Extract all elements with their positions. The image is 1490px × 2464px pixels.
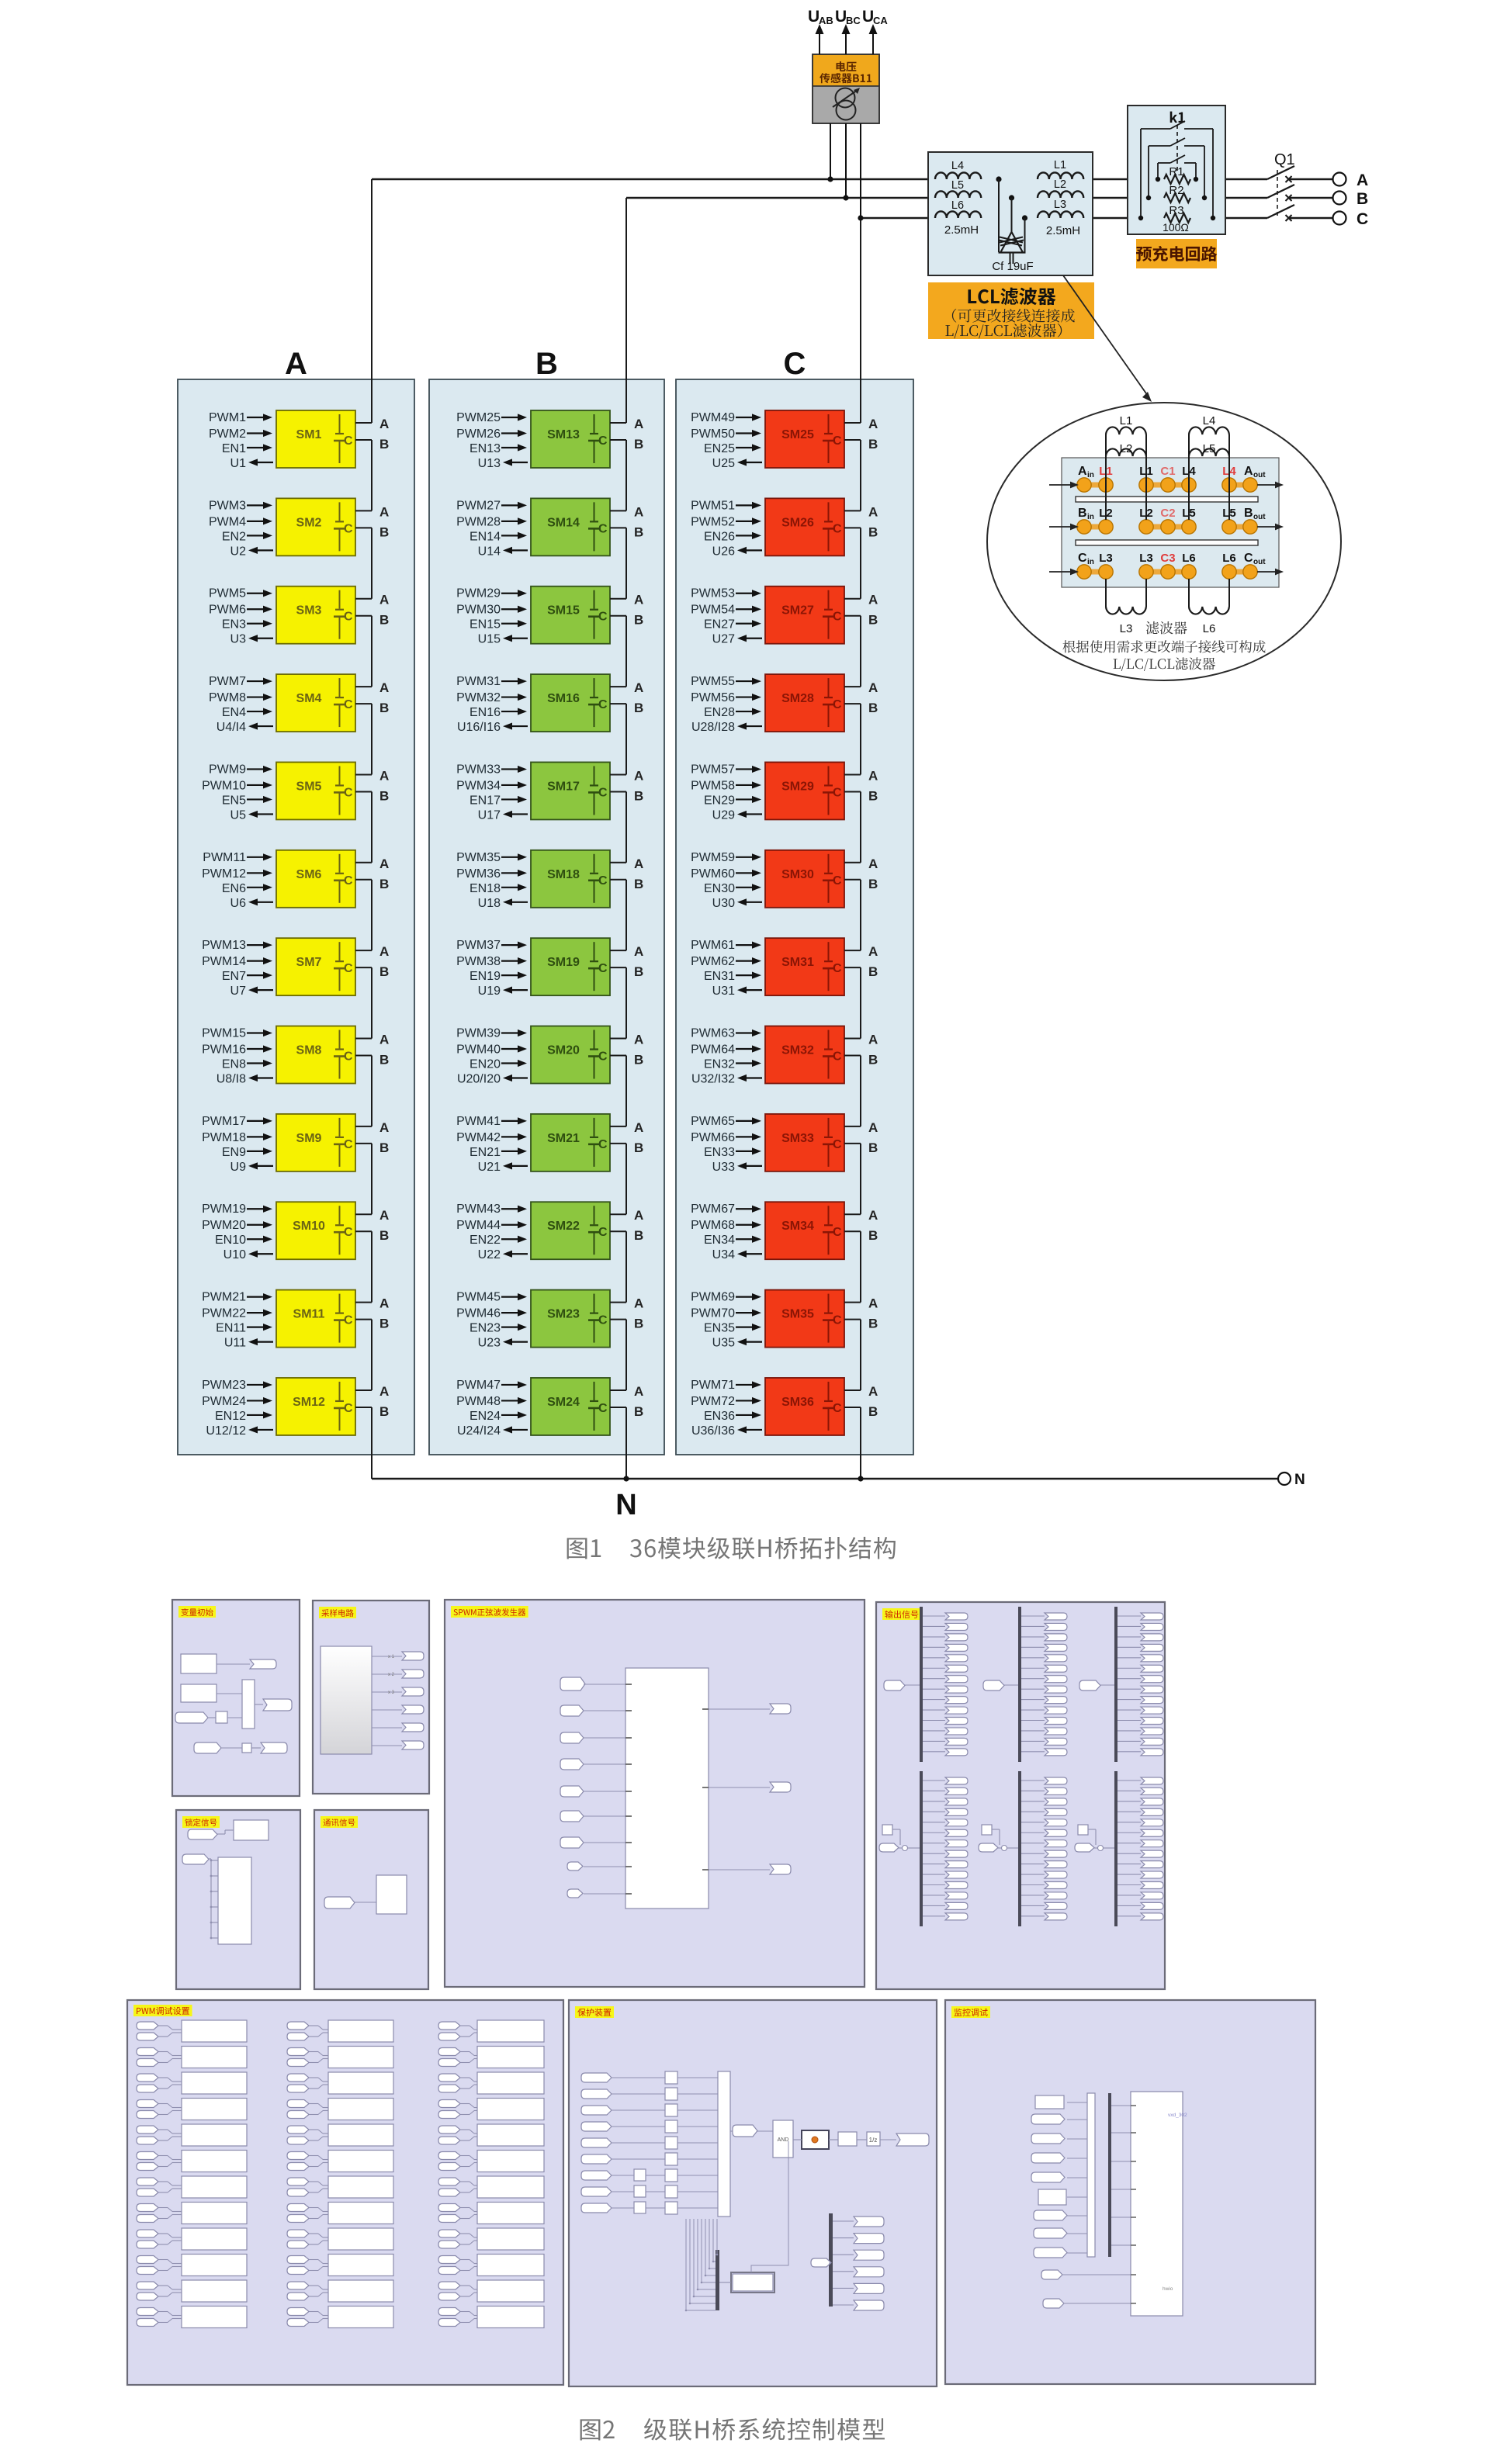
svg-text:PWM26: PWM26 (456, 427, 501, 441)
svg-text:SM27: SM27 (781, 604, 814, 618)
svg-text:A: A (379, 857, 389, 871)
svg-text:EN16: EN16 (470, 706, 501, 719)
svg-text:PWM46: PWM46 (456, 1307, 501, 1320)
svg-text:PWM71: PWM71 (691, 1379, 735, 1392)
svg-text:L3: L3 (1099, 552, 1113, 565)
svg-text:B: B (868, 701, 878, 715)
svg-text:U: U (808, 8, 819, 26)
svg-text:PWM14: PWM14 (202, 955, 246, 968)
svg-text:A: A (634, 680, 643, 695)
svg-text:C: C (344, 698, 353, 711)
svg-text:PWM1: PWM1 (209, 411, 246, 424)
svg-text:SM31: SM31 (781, 956, 814, 969)
svg-text:U7: U7 (230, 985, 247, 998)
svg-text:A: A (868, 1120, 878, 1135)
svg-text:B: B (868, 877, 878, 891)
svg-text:C: C (833, 962, 842, 975)
svg-text:2.5mH: 2.5mH (1046, 224, 1080, 237)
svg-text:SM16: SM16 (547, 692, 580, 705)
svg-text:N: N (1294, 1472, 1305, 1488)
svg-text:A: A (634, 1384, 643, 1399)
svg-text:PWM55: PWM55 (691, 675, 735, 688)
svg-text:PWM41: PWM41 (456, 1115, 501, 1128)
svg-text:A: A (379, 1296, 389, 1311)
svg-text:EN25: EN25 (704, 442, 735, 455)
svg-text:PWM31: PWM31 (456, 675, 501, 688)
svg-text:L6: L6 (1182, 552, 1196, 565)
svg-text:SM20: SM20 (547, 1044, 580, 1057)
svg-text:PWM33: PWM33 (456, 763, 501, 776)
svg-text:AB: AB (819, 15, 833, 26)
svg-text:C: C (833, 522, 842, 535)
svg-text:EN2: EN2 (222, 530, 246, 543)
svg-text:U9: U9 (230, 1161, 247, 1174)
svg-text:SM1: SM1 (296, 428, 322, 441)
svg-text:A: A (634, 593, 643, 607)
svg-text:100Ω: 100Ω (1163, 221, 1189, 234)
svg-text:U12/12: U12/12 (206, 1424, 246, 1438)
svg-text:L3: L3 (1120, 622, 1133, 635)
svg-text:SM25: SM25 (781, 428, 814, 441)
svg-text:PWM27: PWM27 (456, 499, 501, 512)
svg-text:A: A (868, 944, 878, 959)
svg-text:SM36: SM36 (781, 1396, 814, 1409)
svg-text:A: A (868, 504, 878, 519)
svg-text:AND: AND (778, 2137, 789, 2143)
svg-text:B: B (379, 701, 389, 715)
svg-text:SM9: SM9 (296, 1132, 322, 1145)
svg-text:SM19: SM19 (547, 956, 580, 969)
svg-text:EN30: EN30 (704, 882, 735, 895)
svg-text:U29: U29 (712, 808, 735, 822)
svg-text:x 2: x 2 (388, 1673, 395, 1677)
svg-text:A: A (379, 680, 389, 695)
svg-text:PWM67: PWM67 (691, 1203, 735, 1216)
svg-text:SM6: SM6 (296, 868, 322, 881)
svg-text:PWM49: PWM49 (691, 411, 735, 424)
svg-text:PWM21: PWM21 (202, 1291, 246, 1304)
svg-text:C: C (344, 1314, 353, 1327)
svg-text:PWM47: PWM47 (456, 1379, 501, 1392)
svg-text:PWM32: PWM32 (456, 691, 501, 704)
svg-text:C: C (833, 611, 842, 624)
svg-text:B: B (868, 437, 878, 452)
svg-text:PWM28: PWM28 (456, 515, 501, 528)
svg-text:A: A (379, 944, 389, 959)
svg-text:PWM48: PWM48 (456, 1395, 501, 1408)
svg-text:U3: U3 (230, 633, 247, 646)
svg-text:A: A (1078, 465, 1087, 478)
svg-text:L6: L6 (951, 199, 964, 212)
svg-text:A: A (379, 1033, 389, 1047)
svg-text:L5: L5 (951, 179, 964, 192)
svg-text:SM5: SM5 (296, 780, 322, 793)
svg-text:U25: U25 (712, 457, 735, 470)
svg-text:A: A (868, 417, 878, 431)
svg-text:PWM42: PWM42 (456, 1131, 501, 1144)
svg-text:C: C (344, 522, 353, 535)
svg-text:in: in (1087, 471, 1094, 479)
svg-text:EN13: EN13 (470, 442, 501, 455)
svg-text:EN8: EN8 (222, 1058, 246, 1071)
svg-text:PWM52: PWM52 (691, 515, 735, 528)
svg-text:A: A (379, 417, 389, 431)
svg-text:U4/I4: U4/I4 (217, 721, 246, 734)
svg-text:SM7: SM7 (296, 956, 322, 969)
svg-text:SM33: SM33 (781, 1132, 814, 1145)
svg-text:EN31: EN31 (704, 970, 735, 983)
svg-text:PWM12: PWM12 (202, 867, 246, 881)
svg-text:U22: U22 (478, 1248, 501, 1261)
svg-text:C2: C2 (1160, 507, 1175, 520)
svg-text:PWM63: PWM63 (691, 1027, 735, 1040)
svg-text:C: C (344, 434, 353, 448)
svg-text:B: B (379, 437, 389, 452)
svg-text:B: B (379, 524, 389, 539)
svg-text:SM28: SM28 (781, 692, 814, 705)
svg-text:R2: R2 (1169, 184, 1183, 197)
svg-text:PWM69: PWM69 (691, 1291, 735, 1304)
svg-text:EN3: EN3 (222, 618, 246, 632)
svg-text:A: A (1357, 171, 1368, 189)
svg-text:A: A (634, 857, 643, 871)
svg-text:PWM58: PWM58 (691, 779, 735, 792)
svg-text:L4: L4 (1203, 414, 1216, 427)
svg-text:EN20: EN20 (470, 1058, 501, 1071)
svg-text:U16/I16: U16/I16 (457, 721, 501, 734)
svg-text:B: B (868, 964, 878, 979)
svg-text:2.5mH: 2.5mH (944, 223, 979, 237)
svg-text:U1: U1 (230, 457, 247, 470)
svg-text:hwio: hwio (1163, 2286, 1173, 2292)
svg-text:B: B (634, 1053, 643, 1068)
svg-text:PWM25: PWM25 (456, 411, 501, 424)
svg-text:PWM44: PWM44 (456, 1219, 501, 1232)
svg-text:U21: U21 (478, 1161, 501, 1174)
svg-text:U13: U13 (478, 457, 501, 470)
svg-text:out: out (1253, 558, 1266, 566)
svg-text:A: A (634, 1296, 643, 1311)
svg-text:PWM43: PWM43 (456, 1203, 501, 1216)
svg-text:A: A (634, 768, 643, 783)
svg-text:EN18: EN18 (470, 882, 501, 895)
svg-text:EN26: EN26 (704, 530, 735, 543)
svg-text:SM4: SM4 (296, 692, 322, 705)
svg-text:B: B (634, 524, 643, 539)
svg-text:SM10: SM10 (293, 1220, 325, 1233)
svg-text:PWM5: PWM5 (209, 587, 246, 600)
svg-text:PWM15: PWM15 (202, 1027, 246, 1040)
svg-text:B: B (379, 964, 389, 979)
svg-text:SM15: SM15 (547, 604, 580, 618)
svg-text:x 3: x 3 (388, 1691, 395, 1695)
svg-text:C: C (598, 434, 608, 448)
svg-text:A: A (868, 1208, 878, 1223)
svg-text:EN22: EN22 (470, 1234, 501, 1247)
svg-text:EN6: EN6 (222, 882, 246, 895)
svg-text:PWM70: PWM70 (691, 1307, 735, 1320)
svg-text:B: B (379, 788, 389, 803)
svg-text:C: C (344, 962, 353, 975)
svg-text:SM23: SM23 (547, 1308, 580, 1321)
svg-text:L5: L5 (1203, 442, 1216, 455)
svg-text:A: A (634, 1033, 643, 1047)
svg-text:L3: L3 (1054, 199, 1066, 211)
svg-text:PWM53: PWM53 (691, 587, 735, 600)
svg-text:A: A (868, 1033, 878, 1047)
svg-text:A: A (868, 1384, 878, 1399)
svg-text:PWM51: PWM51 (691, 499, 735, 512)
svg-text:C: C (598, 1138, 608, 1151)
svg-text:EN29: EN29 (704, 794, 735, 807)
svg-text:EN23: EN23 (470, 1322, 501, 1335)
svg-text:PWM16: PWM16 (202, 1043, 246, 1057)
svg-text:A: A (634, 1120, 643, 1135)
svg-text:C: C (1244, 552, 1253, 565)
svg-text:A: A (379, 1208, 389, 1223)
svg-text:C: C (833, 874, 842, 888)
svg-text:PWM22: PWM22 (202, 1307, 246, 1320)
svg-text:C: C (1078, 552, 1087, 565)
svg-text:U18: U18 (478, 897, 501, 910)
svg-text:in: in (1087, 513, 1094, 521)
svg-text:U19: U19 (478, 985, 501, 998)
svg-text:C: C (833, 1402, 842, 1415)
svg-text:C: C (598, 874, 608, 888)
svg-text:PWM72: PWM72 (691, 1395, 735, 1408)
svg-text:U28/I28: U28/I28 (691, 721, 735, 734)
svg-text:EN19: EN19 (470, 970, 501, 983)
svg-text:A: A (634, 417, 643, 431)
svg-text:U30: U30 (712, 897, 735, 910)
svg-text:C: C (344, 611, 353, 624)
svg-text:C: C (598, 611, 608, 624)
svg-text:C: C (598, 1402, 608, 1415)
svg-text:SM12: SM12 (293, 1396, 325, 1409)
svg-text:SM14: SM14 (547, 516, 580, 529)
svg-text:EN34: EN34 (704, 1234, 735, 1247)
svg-text:C: C (344, 874, 353, 888)
svg-text:C1: C1 (1160, 465, 1175, 478)
svg-text:C: C (598, 1226, 608, 1239)
svg-text:C: C (833, 698, 842, 711)
svg-text:BC: BC (846, 15, 861, 26)
svg-text:C: C (598, 698, 608, 711)
svg-text:PWM57: PWM57 (691, 763, 735, 776)
svg-text:C: C (344, 786, 353, 799)
svg-text:B: B (868, 524, 878, 539)
svg-text:B: B (634, 1317, 643, 1331)
svg-text:SM3: SM3 (296, 604, 322, 618)
svg-text:B: B (379, 877, 389, 891)
svg-text:L6: L6 (1203, 622, 1216, 635)
svg-text:EN27: EN27 (704, 618, 735, 632)
svg-text:U23: U23 (478, 1337, 501, 1350)
svg-text:EN11: EN11 (216, 1322, 246, 1335)
svg-text:U8/I8: U8/I8 (217, 1073, 246, 1086)
svg-text:PWM59: PWM59 (691, 851, 735, 864)
svg-text:A: A (379, 504, 389, 519)
svg-text:PWM60: PWM60 (691, 867, 735, 881)
svg-text:B: B (535, 347, 558, 381)
svg-text:B: B (379, 1053, 389, 1068)
svg-text:EN14: EN14 (470, 530, 501, 543)
svg-text:B: B (1357, 190, 1368, 208)
svg-text:A: A (1244, 465, 1253, 478)
svg-text:B: B (634, 1140, 643, 1155)
svg-text:A: A (868, 593, 878, 607)
svg-text:EN36: EN36 (704, 1410, 735, 1423)
svg-text:U11: U11 (224, 1337, 246, 1350)
svg-text:B: B (379, 1317, 389, 1331)
svg-text:A: A (379, 1384, 389, 1399)
svg-text:out: out (1253, 513, 1266, 521)
svg-text:PWM56: PWM56 (691, 691, 735, 704)
svg-text:L2: L2 (1054, 178, 1066, 191)
svg-text:L1: L1 (1054, 159, 1066, 171)
svg-text:B: B (634, 613, 643, 628)
svg-text:SM34: SM34 (781, 1220, 814, 1233)
svg-text:SM8: SM8 (296, 1044, 322, 1057)
svg-text:U24/I24: U24/I24 (457, 1424, 501, 1438)
svg-text:EN21: EN21 (470, 1146, 501, 1159)
svg-text:PWM10: PWM10 (202, 779, 246, 792)
svg-text:C: C (833, 786, 842, 799)
svg-text:U20/I20: U20/I20 (457, 1073, 501, 1086)
svg-text:B: B (634, 437, 643, 452)
svg-text:EN17: EN17 (470, 794, 501, 807)
svg-text:A: A (868, 857, 878, 871)
svg-text:B: B (634, 788, 643, 803)
svg-text:SM22: SM22 (547, 1220, 580, 1233)
svg-text:PWM6: PWM6 (209, 604, 246, 617)
svg-text:EN15: EN15 (470, 618, 501, 632)
svg-text:B: B (868, 788, 878, 803)
svg-text:L4: L4 (951, 160, 964, 172)
svg-text:B: B (634, 1228, 643, 1243)
svg-text:U26: U26 (712, 545, 735, 558)
svg-text:C: C (344, 1050, 353, 1064)
svg-text:out: out (1253, 471, 1266, 479)
svg-text:EN35: EN35 (704, 1322, 735, 1335)
svg-text:U15: U15 (478, 633, 501, 646)
svg-text:SM32: SM32 (781, 1044, 814, 1057)
svg-text:A: A (868, 1296, 878, 1311)
svg-text:PWM38: PWM38 (456, 955, 501, 968)
svg-text:U2: U2 (230, 545, 247, 558)
svg-text:A: A (868, 680, 878, 695)
svg-text:U34: U34 (712, 1248, 735, 1261)
svg-text:PWM11: PWM11 (203, 851, 246, 864)
svg-text:PWM17: PWM17 (202, 1115, 246, 1128)
svg-text:PWM36: PWM36 (456, 867, 501, 881)
svg-text:SM30: SM30 (781, 868, 814, 881)
svg-text:A: A (868, 768, 878, 783)
svg-text:C3: C3 (1160, 552, 1175, 565)
svg-text:EN1: EN1 (222, 442, 246, 455)
svg-text:PWM54: PWM54 (691, 604, 735, 617)
svg-text:SM24: SM24 (547, 1396, 580, 1409)
svg-text:U35: U35 (712, 1337, 735, 1350)
svg-text:B: B (1078, 507, 1087, 520)
svg-text:U31: U31 (712, 985, 735, 998)
svg-text:L1: L1 (1120, 414, 1133, 427)
svg-text:C: C (344, 1226, 353, 1239)
svg-text:PWM39: PWM39 (456, 1027, 501, 1040)
svg-text:B: B (379, 613, 389, 628)
svg-text:C: C (833, 1314, 842, 1327)
svg-text:C: C (598, 786, 608, 799)
svg-text:SM17: SM17 (547, 780, 580, 793)
svg-text:B: B (868, 1317, 878, 1331)
svg-text:PWM23: PWM23 (202, 1379, 246, 1392)
svg-text:SM18: SM18 (547, 868, 580, 881)
svg-text:A: A (285, 347, 307, 381)
svg-text:U27: U27 (712, 633, 735, 646)
svg-text:U36/I36: U36/I36 (691, 1424, 735, 1438)
svg-text:B: B (634, 1404, 643, 1419)
svg-text:B: B (1244, 507, 1253, 520)
svg-text:U10: U10 (223, 1248, 246, 1261)
svg-text:C: C (833, 1138, 842, 1151)
svg-text:SM11: SM11 (293, 1308, 325, 1321)
svg-text:PWM61: PWM61 (691, 939, 735, 952)
svg-text:R3: R3 (1169, 204, 1183, 217)
svg-text:B: B (379, 1140, 389, 1155)
svg-text:EN10: EN10 (215, 1234, 246, 1247)
svg-text:N: N (615, 1489, 636, 1521)
svg-text:C: C (598, 1314, 608, 1327)
svg-text:B: B (379, 1228, 389, 1243)
svg-text:vxd_302: vxd_302 (1168, 2113, 1187, 2118)
svg-text:A: A (379, 768, 389, 783)
svg-text:C: C (784, 347, 806, 381)
svg-text:EN28: EN28 (704, 706, 735, 719)
svg-text:A: A (634, 944, 643, 959)
svg-text:B: B (868, 1140, 878, 1155)
svg-text:B: B (379, 1404, 389, 1419)
svg-text:EN12: EN12 (215, 1410, 246, 1423)
svg-text:PWM66: PWM66 (691, 1131, 735, 1144)
svg-text:U17: U17 (478, 808, 501, 822)
svg-text:PWM9: PWM9 (209, 763, 246, 776)
svg-text:SM2: SM2 (296, 516, 322, 529)
svg-text:B: B (868, 1404, 878, 1419)
svg-text:EN9: EN9 (222, 1146, 246, 1159)
svg-text:CA: CA (873, 15, 888, 26)
svg-text:U: U (835, 8, 847, 26)
svg-text:C: C (833, 1226, 842, 1239)
svg-text:C: C (1357, 210, 1368, 228)
svg-text:B: B (634, 964, 643, 979)
svg-text:PWM68: PWM68 (691, 1219, 735, 1232)
svg-text:PWM35: PWM35 (456, 851, 501, 864)
svg-text:L3: L3 (1139, 552, 1153, 565)
svg-text:PWM3: PWM3 (209, 499, 246, 512)
svg-text:EN4: EN4 (222, 706, 246, 719)
svg-text:C: C (598, 522, 608, 535)
svg-text:U14: U14 (478, 545, 501, 558)
svg-text:PWM29: PWM29 (456, 587, 501, 600)
svg-text:C: C (833, 434, 842, 448)
svg-text:Q1: Q1 (1274, 151, 1295, 168)
svg-text:PWM13: PWM13 (202, 939, 246, 952)
svg-text:EN5: EN5 (222, 794, 246, 807)
svg-text:L2: L2 (1120, 442, 1133, 455)
svg-text:U33: U33 (712, 1161, 735, 1174)
svg-text:PWM2: PWM2 (209, 427, 246, 441)
svg-text:B: B (868, 1053, 878, 1068)
